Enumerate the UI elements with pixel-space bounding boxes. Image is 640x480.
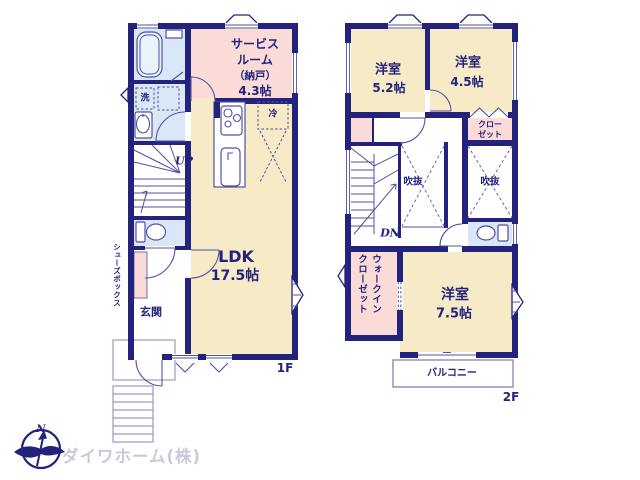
service-room-label: （納戸） [234,71,276,82]
service-room-label: ルーム [237,54,273,66]
ldk-label: LDK [218,249,254,265]
small-bay-window-icon [121,88,128,102]
window-shutter-icon [460,15,492,23]
floor1-tag: 1F [277,362,294,374]
kitchen-icon [214,102,245,187]
closet-label: クロー ゼット [478,120,502,140]
walkin-closet-label: ウォークイン クローゼット [354,254,382,338]
service-room-label: サービス [231,38,279,50]
toilet-icon [136,222,166,242]
void-left-label: 吹抜 [403,177,422,187]
stairs-up-label: UP [175,156,193,167]
shoe-box-label: シューズボックス [113,243,121,307]
exterior-stairs [113,386,153,442]
floorplan-drawing [0,0,640,480]
balcony-label: バルコニー [427,369,477,379]
bedroom3-label: 洋室 [441,288,469,302]
stairs-down-label: DN [380,228,400,239]
bedroom1-label: 洋室 [375,64,401,77]
bedroom2-label: 洋室 [455,57,481,70]
small-bay-window-icon [338,265,345,287]
laundry-label: 洗 [140,95,149,104]
floorplan-page: サービス ルーム （納戸） 4.3帖 洗 冷 UP LDK 17.5帖 玄関 シ… [0,0,640,480]
shutter-mark-icon [176,363,228,372]
upper-hall-closet [351,118,372,142]
shoe-box [134,252,147,298]
ldk-size: 17.5帖 [211,269,260,283]
bedroom3-size: 7.5帖 [436,308,472,321]
window-shutter-icon [389,15,421,23]
room-bedroom-45 [430,29,512,112]
sink-icon [135,112,152,138]
entrance-label: 玄関 [140,307,162,318]
compass-north-label: N [36,425,45,435]
window-shutter-icon [226,15,257,23]
bedroom2-size: 4.5帖 [450,76,483,88]
company-logo-text: ダイワホーム(株) [62,449,201,466]
stairs-2f [351,148,398,234]
compass-icon [14,430,65,468]
service-room-size: 4.3帖 [238,85,271,97]
bedroom1-size: 5.2帖 [372,82,405,94]
floor2-tag: 2F [503,391,520,403]
void-right-label: 吹抜 [480,177,499,187]
fridge-label: 冷 [268,111,277,120]
